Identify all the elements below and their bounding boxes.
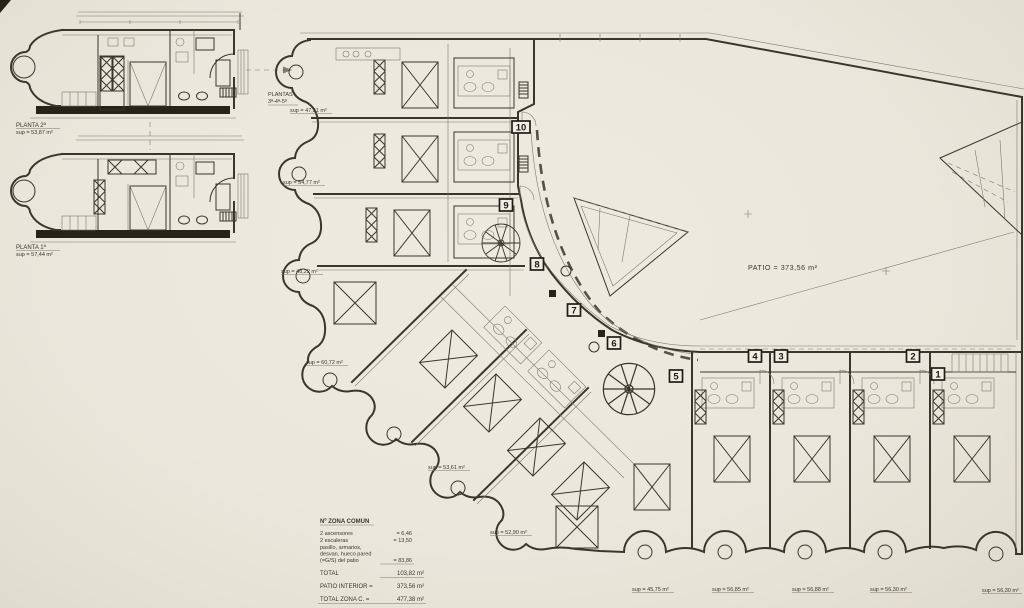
svg-text:10: 10 <box>516 122 527 133</box>
area-label-10: sup = 56,30 m² <box>870 587 907 593</box>
spiral-stair-small <box>482 224 520 262</box>
scan-corner-mark <box>0 0 11 13</box>
legend-row2-value: = 13,50 <box>393 538 412 544</box>
diagonal-wing-interior <box>323 270 636 548</box>
spiral-stair-large <box>603 363 654 414</box>
svg-text:7: 7 <box>571 305 576 316</box>
patio-skylight-triangle <box>574 198 688 296</box>
floors-note-line1: PLANTAS <box>268 92 293 98</box>
area-label-1: sup = 47,51 m² <box>290 108 327 114</box>
area-label-5: sup = 53,61 m² <box>428 465 465 471</box>
unit-box-6: 6 <box>608 337 621 349</box>
straight-stair <box>952 354 1008 372</box>
area-label-2: sup = 54,77 m² <box>283 180 320 186</box>
patio-area-label: PATIO = 373,56 m² <box>748 263 818 272</box>
legend-zone-label: TOTAL ZONA C. = <box>320 597 370 603</box>
legend-row3-label: pasillo, armarios, <box>320 545 362 551</box>
unit-box-2: 2 <box>907 350 920 362</box>
svg-text:6: 6 <box>611 338 616 349</box>
unit-box-8: 8 <box>531 258 544 270</box>
area-label-6: sup = 52,90 m² <box>490 530 527 536</box>
left-wing-interior <box>289 44 536 296</box>
legend-row5-label: (=G/S) del patio <box>320 558 359 564</box>
detail-unit-upper-name: PLANTA 2ª <box>16 122 47 129</box>
bottom-wing-interior <box>634 352 1016 561</box>
svg-text:3: 3 <box>778 351 783 362</box>
legend-row5-value: = 83,86 <box>393 558 412 564</box>
svg-text:8: 8 <box>534 259 539 270</box>
detail-unit-lower <box>11 136 248 242</box>
unit-box-9: 9 <box>500 199 513 211</box>
unit-box-7: 7 <box>568 304 581 316</box>
legend-title: Nº ZONA COMUN <box>320 519 369 525</box>
legend-total-value: 103,82 m² <box>397 571 424 577</box>
legend-row4-label: desvan, hueco pared <box>320 552 371 558</box>
svg-text:4: 4 <box>752 351 758 362</box>
svg-text:2: 2 <box>910 351 915 362</box>
area-label-11: sup = 56,30 m² <box>982 588 1019 594</box>
legend-zone-value: 477,38 m² <box>397 597 424 603</box>
scanned-floor-plan-sheet: PLANTA 2ª sup = 53,87 m² PLANTA 1ª sup =… <box>0 0 1024 608</box>
unit-box-10: 10 <box>512 121 530 133</box>
svg-text:5: 5 <box>673 371 679 382</box>
patio-curved-wall <box>537 130 698 360</box>
svg-text:9: 9 <box>503 200 508 211</box>
detail-unit-upper-area: sup = 53,87 m² <box>16 130 53 136</box>
area-label-7: sup = 45,75 m² <box>632 587 669 593</box>
legend-common-zone: Nº ZONA COMUN 2 ascensores = 6,46 2 esca… <box>318 519 426 604</box>
unit-box-1: 1 <box>932 368 945 380</box>
area-label-8: sup = 56,85 m² <box>712 587 749 593</box>
floors-note-line2: 3ª-4ª-5ª <box>268 98 288 105</box>
legend-patio-value: 373,56 m² <box>397 584 424 590</box>
legend-row1-value: = 6,46 <box>397 531 412 537</box>
legend-patio-label: PATIO INTERIOR = <box>320 584 373 590</box>
unit-box-3: 3 <box>775 350 788 362</box>
area-label-9: sup = 56,88 m² <box>792 587 829 593</box>
legend-row1-label: 2 ascensores <box>320 531 353 537</box>
detail-unit-upper <box>11 12 248 118</box>
area-label-4: sup = 60,72 m² <box>306 360 343 366</box>
legend-total-label: TOTAL <box>320 571 339 577</box>
detail-unit-lower-area: sup = 57,44 m² <box>16 252 53 258</box>
patio-corner-wedge <box>700 122 1022 320</box>
main-plan-envelope <box>276 33 1024 554</box>
area-label-3: sup = 48,22 m² <box>281 269 318 275</box>
unit-box-5: 5 <box>670 370 683 382</box>
unit-box-4: 4 <box>749 350 762 362</box>
floor-plan-drawing: PLANTA 2ª sup = 53,87 m² PLANTA 1ª sup =… <box>0 0 1024 608</box>
detail-unit-lower-name: PLANTA 1ª <box>16 244 47 251</box>
svg-text:1: 1 <box>935 369 941 380</box>
legend-row2-label: 2 escaleras <box>320 538 348 544</box>
